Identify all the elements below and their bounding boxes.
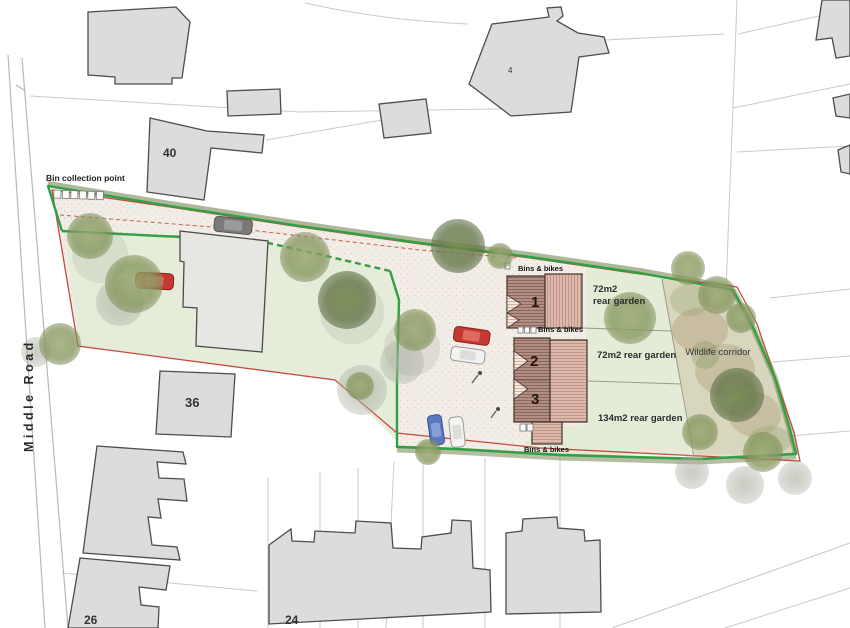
building-right-3 xyxy=(838,145,850,174)
house-36-label: 36 xyxy=(185,395,199,410)
site-plan-canvas: Bin collection point Middle Road 40 4 36… xyxy=(0,0,850,628)
tree xyxy=(675,455,709,489)
house-26-label: 26 xyxy=(84,613,98,627)
building-small-top xyxy=(227,89,281,116)
proposed-buildings xyxy=(507,274,587,444)
tree xyxy=(726,303,756,333)
tree xyxy=(415,439,441,465)
garden-72-label-line2: rear garden xyxy=(593,296,645,307)
plot-2-label: 2 xyxy=(530,353,538,370)
wildlife-corridor-label: Wildlife corridor xyxy=(685,347,750,358)
tree xyxy=(394,309,436,351)
building-top-left xyxy=(88,7,190,84)
house-4-label: 4 xyxy=(508,66,513,75)
tree xyxy=(487,243,513,269)
house-24-label: 24 xyxy=(285,613,299,627)
car-white-2 xyxy=(448,416,465,447)
tree xyxy=(280,232,330,282)
tree xyxy=(318,271,376,329)
bins-bikes-label-2: Bins & bikes xyxy=(538,325,583,334)
plot-1-label: 1 xyxy=(531,294,539,311)
tree xyxy=(671,251,705,285)
bin-store-roof xyxy=(532,422,562,444)
bins-bikes-label-1: Bins & bikes xyxy=(518,264,563,273)
tree xyxy=(67,213,113,259)
garden-72-label-line1: 72m2 xyxy=(593,284,617,295)
garden-134-label: 134m2 rear garden xyxy=(598,413,683,424)
building-4 xyxy=(469,7,609,116)
tree xyxy=(346,372,374,400)
terrace-east xyxy=(506,517,601,614)
tree xyxy=(39,323,81,365)
plot-1-building xyxy=(507,274,582,328)
tree xyxy=(743,432,783,472)
building-right-2 xyxy=(833,94,850,118)
bins-bikes-label-3: Bins & bikes xyxy=(524,445,569,454)
middle-road-label: Middle Road xyxy=(22,339,36,452)
building-small-mid xyxy=(379,99,431,138)
garden-72b-label: 72m2 rear garden xyxy=(597,350,676,361)
bin-collection-label: Bin collection point xyxy=(46,173,125,183)
plot-3-label: 3 xyxy=(531,391,539,408)
site-plan-svg: Bin collection point Middle Road 40 4 36… xyxy=(0,0,850,628)
tree xyxy=(710,368,764,422)
terrace-24 xyxy=(269,520,491,624)
terrace-west-upper xyxy=(83,446,187,560)
tree xyxy=(682,414,718,450)
building-right-1 xyxy=(816,0,850,58)
tree xyxy=(431,219,485,273)
tree xyxy=(778,461,812,495)
house-40-label: 40 xyxy=(163,146,177,160)
tree xyxy=(105,255,163,313)
tree xyxy=(726,466,764,504)
